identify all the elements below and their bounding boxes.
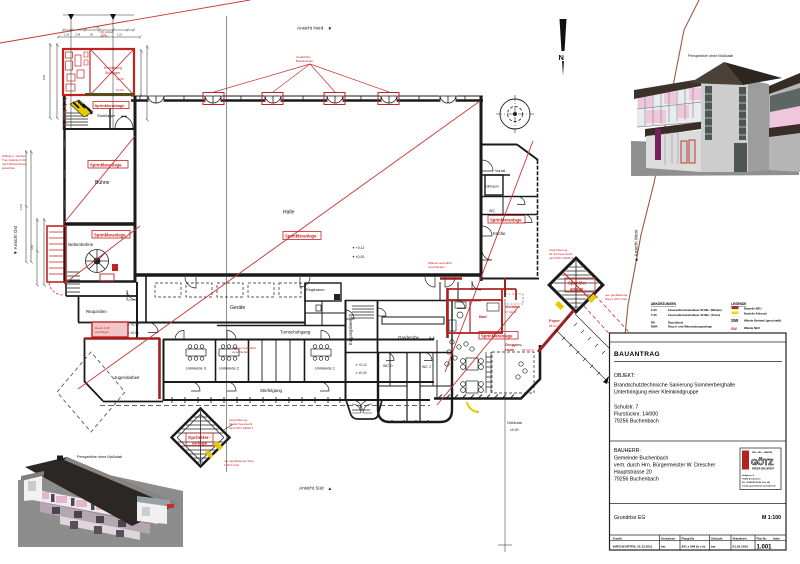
svg-text:Jugendarbeit: Jugendarbeit: [114, 375, 140, 380]
svg-text:Plan Nr.:: Plan Nr.:: [757, 537, 768, 541]
svg-text:verschließen: verschließen: [232, 350, 249, 354]
svg-text:Gezeichnet: Gezeichnet: [661, 537, 675, 541]
svg-text:vertr. durch Hrn. Bürgermeiste: vertr. durch Hrn. Bürgermeister W. Dresc…: [614, 463, 715, 469]
svg-text:1,26: 1,26: [64, 33, 70, 37]
svg-text:Requisiten: Requisiten: [86, 309, 107, 314]
svg-text:FREIER ARCHITEKT: FREIER ARCHITEKT: [752, 468, 775, 471]
svg-text:Sprinkleranlage: Sprinkleranlage: [285, 234, 317, 239]
svg-text:79256 Buchenbach: 79256 Buchenbach: [614, 419, 659, 425]
svg-text:SW: SW: [731, 327, 737, 331]
svg-text:79183 Kirchzarten: 79183 Kirchzarten: [742, 478, 761, 481]
svg-text:Gemeinde Buchenbach: Gemeinde Buchenbach: [614, 456, 668, 462]
svg-text:Ansicht Nord: Ansicht Nord: [297, 26, 324, 31]
svg-text:5,64: 5,64: [30, 244, 34, 250]
svg-text:Stuhllager: Stuhllager: [97, 113, 116, 118]
svg-text:ertüchtigen: ertüchtigen: [95, 330, 109, 334]
svg-text:anlage: anlage: [570, 287, 584, 292]
svg-text:1.001: 1.001: [757, 545, 773, 551]
svg-text:Wände NEU: Wände NEU: [744, 326, 760, 330]
svg-text:17,32 m²: 17,32 m²: [505, 310, 517, 314]
svg-text:✦ +0,12: ✦ +0,12: [127, 323, 139, 327]
svg-text:Sprinkleranlage: Sprinkleranlage: [481, 333, 513, 338]
svg-text:Umkleide 2: Umkleide 2: [219, 366, 240, 371]
svg-text:Umkleide 1: Umkleide 1: [315, 366, 336, 371]
svg-text:Perspektive ohne Maßstab: Perspektive ohne Maßstab: [688, 54, 733, 58]
svg-text:Stiefelgang: Stiefelgang: [260, 388, 283, 393]
svg-text:Feuerwiderstandsdauer 30 Min.: Feuerwiderstandsdauer 30 Min. (Türen): [668, 313, 720, 317]
svg-text:±0,00: ±0,00: [116, 88, 124, 92]
svg-text:✦ +0,12: ✦ +0,12: [355, 363, 367, 367]
svg-text:Sprinkleranlage: Sprinkleranlage: [490, 217, 522, 222]
svg-text:anlage: anlage: [192, 441, 208, 447]
svg-text:95,34 m²: 95,34 m²: [549, 324, 561, 328]
svg-text:F-90: F-90: [651, 308, 657, 312]
svg-text:✦ +0,12: ✦ +0,12: [352, 246, 364, 250]
svg-text:bw: bw: [711, 545, 716, 549]
svg-text:Regieraum: Regieraum: [306, 288, 325, 292]
svg-text:Hauptstrasse 20: Hauptstrasse 20: [614, 470, 652, 476]
svg-text:nach DIN 14090 4: nach DIN 14090 4: [549, 256, 574, 260]
svg-text:▼: ▼: [328, 26, 333, 31]
svg-text:79256 Buchenbach: 79256 Buchenbach: [614, 477, 659, 483]
svg-text:Sprinkleranlage: Sprinkleranlage: [95, 103, 126, 108]
svg-text:Sprinkleranlage: Sprinkleranlage: [90, 162, 122, 167]
svg-text:SW: SW: [731, 318, 739, 323]
svg-text:verschließen: verschließen: [428, 265, 445, 269]
svg-text:841 x 594 (b x h): 841 x 594 (b x h): [682, 545, 706, 549]
svg-text:Perspektive ohne Maßstab: Perspektive ohne Maßstab: [77, 455, 122, 459]
svg-text:Wände Bestand (geschrafft): Wände Bestand (geschrafft): [744, 319, 781, 323]
svg-text:Erstellt: Erstellt: [613, 537, 622, 541]
svg-text:2,38: 2,38: [75, 33, 81, 37]
svg-text:raum: raum: [505, 348, 515, 352]
svg-text:WC J: WC J: [422, 365, 431, 369]
svg-text:LEGENDE: LEGENDE: [731, 302, 746, 306]
svg-text:Bad: Bad: [479, 314, 487, 319]
svg-text:Küche: Küche: [493, 231, 506, 236]
svg-text:A-A: A-A: [429, 336, 435, 340]
svg-text:gutachten: gutachten: [2, 166, 16, 170]
svg-text:N: N: [559, 53, 564, 62]
svg-text:Bühne: Bühne: [95, 180, 110, 186]
svg-text:ABKÜRZUNGEN: ABKÜRZUNGEN: [651, 301, 677, 306]
svg-text:Plangröße: Plangröße: [682, 537, 695, 541]
svg-text:OBJEKT:: OBJEKT:: [614, 373, 635, 379]
svg-text:Umkleide 3: Umkleide 3: [186, 366, 207, 371]
svg-text:+4,30: +4,30: [100, 34, 108, 38]
svg-text:+0,00: +0,00: [116, 77, 124, 81]
svg-text:Schlafen: Schlafen: [505, 305, 520, 309]
svg-text:✦ ±0,00: ✦ ±0,00: [355, 371, 367, 375]
svg-text:Ansicht Süd: Ansicht Süd: [299, 486, 324, 491]
svg-text:✦ ±0,00: ✦ ±0,00: [127, 331, 139, 335]
svg-text:nach DIN 14090 4: nach DIN 14090 4: [229, 426, 254, 430]
svg-text:Gedruckt: Gedruckt: [711, 537, 723, 541]
svg-text:WC D: WC D: [383, 364, 393, 368]
svg-text:Aktualisiert: Aktualisiert: [733, 537, 747, 541]
svg-text:Schulstr. 7: Schulstr. 7: [614, 405, 638, 411]
svg-text:T-30: T-30: [651, 313, 657, 317]
svg-text:Rauch- und Wärmeabzugsanlage: Rauch- und Wärmeabzugsanlage: [668, 325, 712, 329]
svg-text:DIPL.-ING. MARTIN: DIPL.-ING. MARTIN: [752, 451, 773, 454]
svg-text:Gelände: Gelände: [507, 420, 523, 425]
svg-text:GÖTZ: GÖTZ: [751, 457, 773, 467]
svg-text:Gruppen-: Gruppen-: [505, 343, 523, 347]
svg-text:01.02.2012: 01.02.2012: [733, 545, 749, 549]
svg-text:7,38: 7,38: [94, 26, 100, 30]
svg-text:Vorrat: Vorrat: [495, 169, 506, 173]
svg-text:1,25m breit: 1,25m breit: [224, 463, 239, 467]
svg-text:▲ Ansicht West: ▲ Ansicht West: [634, 229, 639, 262]
svg-text:±0,00: ±0,00: [510, 428, 519, 432]
svg-text:Brandmelder: Brandmelder: [296, 59, 313, 63]
svg-text:Garderobe: Garderobe: [398, 335, 420, 340]
svg-text:56,34 m²: 56,34 m²: [522, 348, 534, 352]
svg-text:KIRCHZARTEN, 22.12.2011: KIRCHZARTEN, 22.12.2011: [613, 545, 653, 549]
svg-text:1,23: 1,23: [117, 33, 123, 37]
svg-text:Flurstücknr. 14/000: Flurstücknr. 14/000: [614, 412, 658, 418]
svg-text:Bauteile NEU: Bauteile NEU: [744, 307, 762, 311]
svg-text:12,01: 12,01: [19, 203, 23, 210]
svg-text:Unterbringung einer Kleinkindg: Unterbringung einer Kleinkindgruppe: [614, 390, 699, 396]
svg-text:Weg 1,25m breit: Weg 1,25m breit: [605, 297, 627, 301]
svg-text:Brandschutztechnische Sanierun: Brandschutztechnische Sanierung Sommerbe…: [614, 383, 735, 389]
svg-text:BAUHERR:: BAUHERR:: [614, 448, 641, 454]
svg-text:Foyer: Foyer: [549, 318, 560, 323]
svg-text:▲: ▲: [328, 486, 333, 491]
svg-text:Bauteile Abbruch: Bauteile Abbruch: [744, 312, 767, 316]
svg-text:RWA: RWA: [651, 325, 657, 329]
svg-text:▼ Ansicht Ost: ▼ Ansicht Ost: [13, 225, 18, 255]
svg-text:Turnschuhgang: Turnschuhgang: [280, 330, 311, 335]
svg-text:✦ ±0,00: ✦ ±0,00: [352, 255, 364, 259]
svg-text:martin.goetz@freier-architekt.: martin.goetz@freier-architekt.de: [742, 485, 776, 488]
svg-text:WC: WC: [489, 209, 495, 213]
svg-text:Grundriss EG: Grundriss EG: [614, 515, 645, 521]
svg-text:Erweiterung: Erweiterung: [104, 66, 122, 70]
svg-text:Halle: Halle: [283, 210, 295, 216]
svg-text:Hofgasse 4: Hofgasse 4: [742, 474, 754, 477]
svg-text:Stuhllager: Stuhllager: [105, 71, 121, 75]
svg-text:Index: Index: [773, 537, 780, 541]
svg-text:Kühlraum: Kühlraum: [485, 185, 499, 189]
svg-text:Sprinkler-: Sprinkler-: [188, 435, 211, 441]
svg-text:Tel. 07661/9702-46, Fax -49: Tel. 07661/9702-46, Fax -49: [742, 481, 770, 484]
svg-text:Nebenbühne: Nebenbühne: [68, 242, 94, 247]
svg-text:Sprinkler-: Sprinkler-: [568, 281, 588, 286]
svg-text:M 1:100: M 1:100: [762, 515, 781, 521]
svg-text:BAUANTRAG: BAUANTRAG: [614, 351, 660, 358]
svg-text:Geräte: Geräte: [230, 305, 246, 311]
svg-text:Sprinkleranlage: Sprinkleranlage: [94, 232, 126, 237]
svg-text:Feuerwiderstandsdauer 90 Min.: Feuerwiderstandsdauer 90 Min. (Wände): [668, 308, 722, 312]
svg-text:bw: bw: [661, 545, 666, 549]
svg-text:8,85: 8,85: [42, 74, 46, 80]
